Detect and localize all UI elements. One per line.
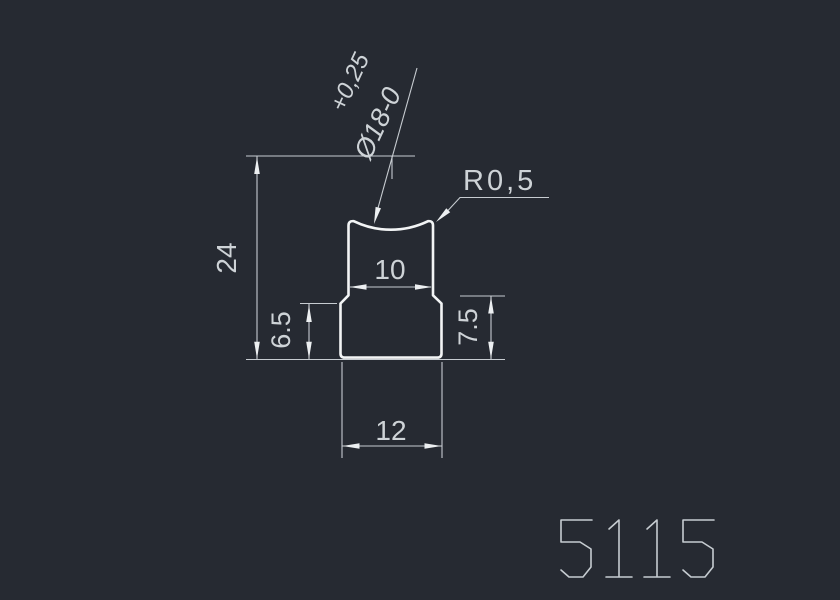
dimension-10-label: 10: [374, 254, 405, 285]
radius-label: R0,5: [463, 165, 536, 197]
dimension-12-label: 12: [375, 415, 406, 446]
dimension-7-5-label: 7.5: [453, 308, 483, 346]
drawing-background: [0, 0, 840, 600]
cad-canvas: 24 6.5 7.5 10: [0, 0, 840, 600]
dimension-24-label: 24: [211, 242, 242, 273]
cad-viewport: 24 6.5 7.5 10: [0, 0, 840, 600]
dimension-6-5-label: 6.5: [266, 311, 296, 349]
